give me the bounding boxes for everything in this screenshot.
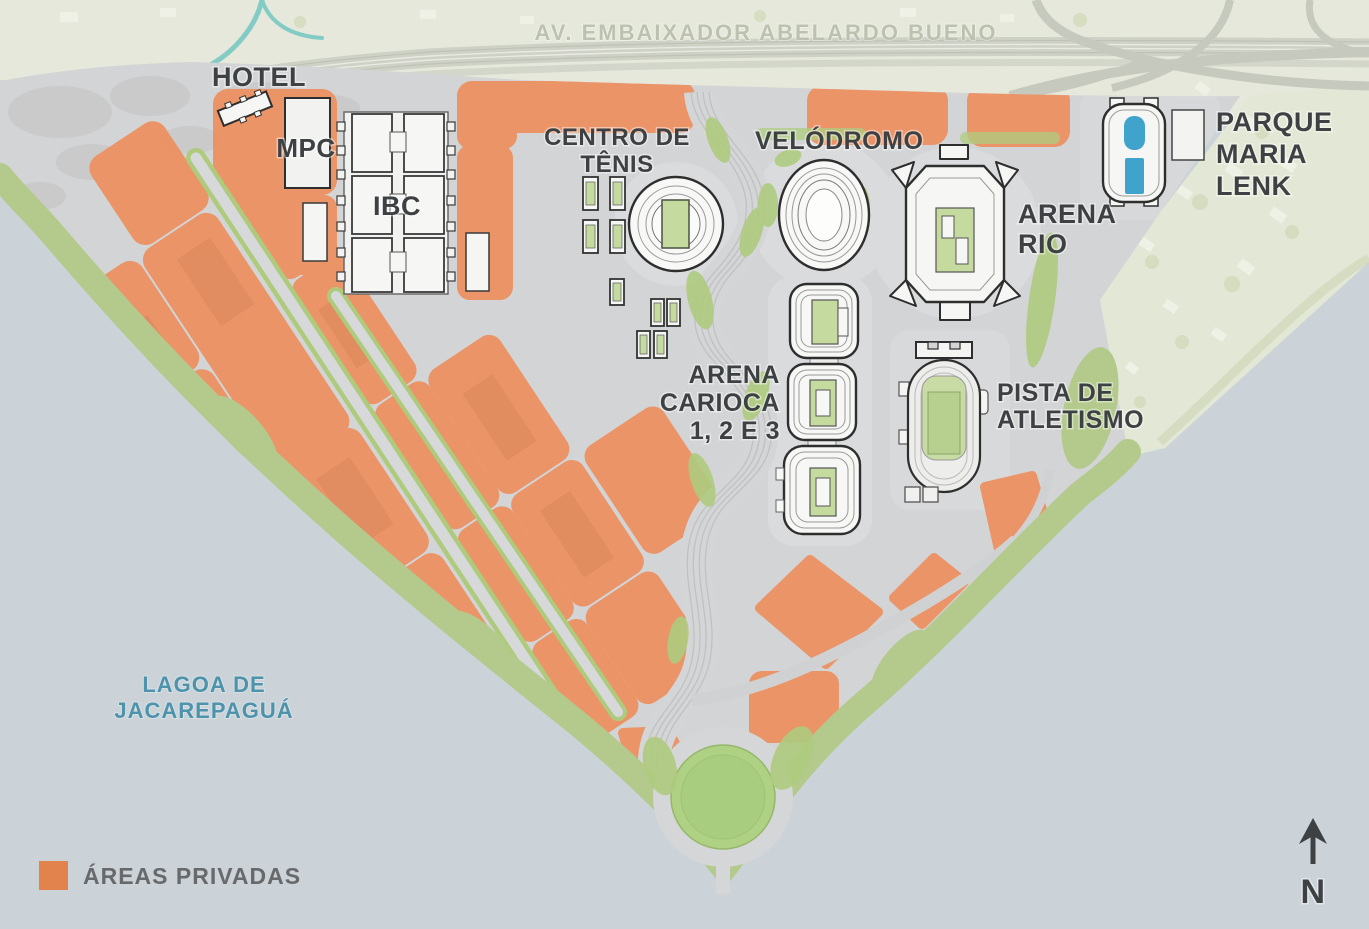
diving-pool: [1124, 116, 1145, 150]
velodrome-building: [779, 160, 869, 270]
map-canvas: AV. EMBAIXADOR ABELARDO BUENO HOTEL MPC …: [0, 0, 1369, 929]
svg-text:1, 2 E 3: 1, 2 E 3: [690, 417, 780, 445]
hotel-label: HOTEL: [212, 62, 306, 92]
avenue-label: AV. EMBAIXADOR ABELARDO BUENO: [535, 20, 998, 45]
svg-text:PARQUE: PARQUE: [1216, 107, 1333, 137]
legend-label: ÁREAS PRIVADAS: [83, 862, 301, 889]
maria-lenk-annex: [1172, 110, 1204, 160]
legend-swatch-private-areas: [39, 861, 68, 890]
svg-text:JACAREPAGUÁ: JACAREPAGUÁ: [114, 698, 293, 723]
svg-text:CENTRO DE: CENTRO DE: [544, 124, 690, 151]
svg-text:ATLETISMO: ATLETISMO: [997, 406, 1144, 434]
ibc-label: IBC: [373, 191, 421, 221]
mpc-label: MPC: [276, 133, 335, 163]
svg-text:LENK: LENK: [1216, 171, 1292, 201]
svg-text:RIO: RIO: [1018, 229, 1068, 259]
north-label: N: [1300, 873, 1325, 911]
olympic-park-map: AV. EMBAIXADOR ABELARDO BUENO HOTEL MPC …: [0, 0, 1369, 929]
velodrome-label: VELÓDROMO: [755, 125, 923, 155]
svg-text:LAGOA DE: LAGOA DE: [142, 672, 265, 697]
svg-text:ARENA: ARENA: [1018, 199, 1117, 229]
tennis-centre-stadium: [629, 177, 723, 271]
svg-text:PISTA DE: PISTA DE: [997, 379, 1114, 407]
arena-rio-building: [890, 145, 1020, 320]
svg-text:TÊNIS: TÊNIS: [580, 150, 653, 178]
svg-text:ARENA: ARENA: [689, 361, 780, 389]
svg-text:MARIA: MARIA: [1216, 139, 1307, 169]
swimming-pool: [1125, 158, 1144, 194]
maria-lenk-aquatic-centre: [1103, 98, 1165, 206]
svg-text:CARIOCA: CARIOCA: [660, 389, 780, 417]
